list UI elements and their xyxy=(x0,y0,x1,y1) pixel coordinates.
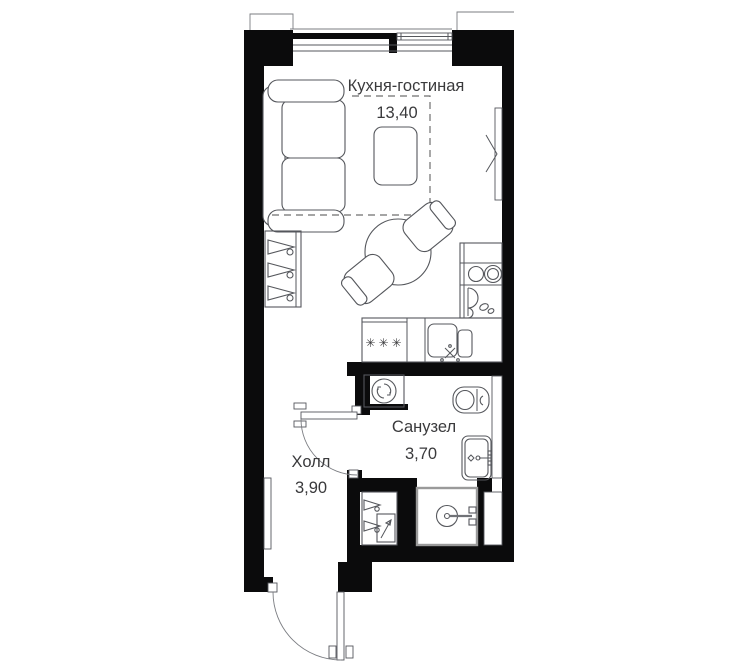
storage-closet xyxy=(362,492,397,545)
wall-panel xyxy=(264,478,271,549)
kitchen-appliance-icon xyxy=(468,288,495,318)
room-area: 13,40 xyxy=(376,104,417,122)
hob-marks: ✳✳✳ xyxy=(365,336,404,350)
room-name: Санузел xyxy=(392,418,456,436)
wardrobe xyxy=(265,231,301,307)
shower-icon xyxy=(417,488,477,545)
room-label-bathroom: Санузел 3,70 xyxy=(392,418,456,463)
coffee-table xyxy=(374,127,417,185)
cooktop-burners-icon xyxy=(469,266,502,283)
room-name: Кухня-гостиная xyxy=(348,77,465,95)
room-area: 3,70 xyxy=(405,445,437,463)
hanger-icon xyxy=(364,500,380,511)
hanger-icon xyxy=(268,263,294,278)
kitchen-sink-icon xyxy=(428,324,472,361)
facade-outline xyxy=(250,12,514,30)
room-name: Холл xyxy=(292,453,331,471)
hanger-icon xyxy=(268,286,294,301)
toilet-icon xyxy=(453,387,489,413)
room-area: 3,90 xyxy=(295,479,327,497)
hanger-icon xyxy=(268,240,294,255)
side-window xyxy=(486,108,502,200)
room-label-kitchen-living: Кухня-гостиная 13,40 xyxy=(348,77,465,122)
room-label-hall: Холл 3,90 xyxy=(292,453,331,497)
hanger-icon xyxy=(364,521,380,532)
floor-plan: ✳✳✳ xyxy=(0,0,737,671)
entrance-door xyxy=(268,583,353,660)
window-right xyxy=(397,33,452,40)
bathroom-sink-icon xyxy=(462,436,493,480)
kitchen-counter xyxy=(460,243,502,318)
sofa xyxy=(263,80,345,232)
